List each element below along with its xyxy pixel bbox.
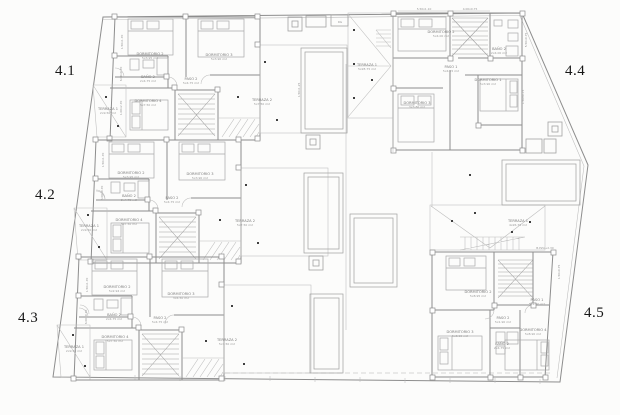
survey-dot xyxy=(219,219,221,221)
room-label: 5x7.50 m2 xyxy=(254,102,270,106)
survey-dot xyxy=(353,63,355,65)
stairs xyxy=(452,18,488,56)
survey-dot xyxy=(243,363,245,365)
room-label: 5x4.75 m2 xyxy=(152,320,168,324)
dimension-label: 6.00x0.70 xyxy=(119,67,123,82)
unit-4-2-plan xyxy=(74,137,328,264)
unit-label-4-4: 4.4 xyxy=(565,64,585,79)
room-label: 4x26.75 m2 xyxy=(509,223,527,227)
dimension-label: 5.50x1.10 xyxy=(417,7,432,11)
room-label: 5x8.95 m2 xyxy=(470,294,486,298)
dimension-label: 1.00x2.70 xyxy=(119,101,123,116)
room-label: 5x3.90 m2 xyxy=(480,82,496,86)
annotation-layer: DORMITORIO 25x3.95 m2DORMITORIO 35x3.90 … xyxy=(63,7,561,367)
room-label: 5x7.50 m2 xyxy=(237,223,253,227)
dimension-label: 1.50x0.75 xyxy=(521,90,525,105)
dimension-label: RG xyxy=(338,20,342,24)
survey-dot xyxy=(469,174,471,176)
unit-4-1-plan xyxy=(93,14,347,141)
survey-dot xyxy=(529,221,531,223)
survey-dot xyxy=(511,231,513,233)
room-label: 5x4.75 m2 xyxy=(183,81,199,85)
survey-dot xyxy=(84,365,86,367)
dimension-label: 1.50x0.75 xyxy=(557,265,561,280)
dimension-label: 1.50x1.70 xyxy=(101,153,105,168)
survey-dot xyxy=(72,334,74,336)
survey-dot xyxy=(353,97,355,99)
survey-dot xyxy=(353,29,355,31)
room-label: 3x4.50 m2 xyxy=(173,296,189,300)
room-label: 5x3.90 m2 xyxy=(192,176,208,180)
room-label: 5x4.75 m2 xyxy=(164,200,180,204)
columns xyxy=(391,11,525,153)
survey-dot xyxy=(257,242,259,244)
room-label: 3x3.80 m2 xyxy=(409,105,425,109)
survey-dot xyxy=(231,305,233,307)
survey-dot xyxy=(371,79,373,81)
room-label: 2x4.75 m2 xyxy=(121,198,137,202)
survey-dot xyxy=(117,125,119,127)
room-label: 2x4.75 m2 xyxy=(140,79,156,83)
survey-dot xyxy=(237,96,239,98)
room-label: 5x28.75 m2 xyxy=(358,67,376,71)
room-label: 5x4.00 m2 xyxy=(433,34,449,38)
survey-dot xyxy=(264,61,266,63)
dimension-label: B.PZA+2.30 xyxy=(536,246,554,250)
room-label: 2x9.50 m2 xyxy=(66,349,82,353)
survey-dot xyxy=(451,220,453,222)
room-label: 5x1.90 m2 xyxy=(495,320,511,324)
stairs xyxy=(498,260,533,298)
survey-dot xyxy=(98,246,100,248)
terrace-pools xyxy=(301,48,580,373)
survey-dot xyxy=(205,340,207,342)
survey-dot xyxy=(245,184,247,186)
survey-dot xyxy=(87,214,89,216)
unit-label-4-3: 4.3 xyxy=(18,311,38,326)
unit-4-3-plan xyxy=(57,254,311,381)
dimension-label: 1.50x1.70 xyxy=(120,35,124,50)
room-label: 5x7.50 m2 xyxy=(219,342,235,346)
room-label: 2x9.50 m2 xyxy=(81,228,97,232)
dimension-label: 6.00x0.70 xyxy=(100,186,104,201)
room-label: 5x3.90 m2 xyxy=(211,57,227,61)
dimension-label: 1.50x1.70 xyxy=(85,278,89,293)
dimension-label: 1.50x1.25 xyxy=(297,83,301,98)
room-label: 2x4.75 m2 xyxy=(494,346,510,350)
room-label: 5x3.95 m2 xyxy=(142,56,158,60)
dimension-label: 5.50x0.75 xyxy=(524,33,528,48)
room-label: 5x7.50 m2 xyxy=(121,222,137,226)
room-label: 5x1.90 m2 xyxy=(529,302,545,306)
unit-label-4-1: 4.1 xyxy=(55,64,75,79)
room-label: 2x4.75 m2 xyxy=(106,317,122,321)
service-shafts xyxy=(288,15,562,270)
room-label: 5x4.15 m2 xyxy=(443,69,459,73)
floorplan-sheet: DORMITORIO 25x3.95 m2DORMITORIO 35x3.90 … xyxy=(0,0,620,415)
room-label: 5x7.50 m2 xyxy=(140,103,156,107)
room-label: 5x8.90 m2 xyxy=(525,332,541,336)
room-label: 5x2.94 m2 xyxy=(109,289,125,293)
unit-label-4-2: 4.2 xyxy=(35,188,55,203)
room-label: 5x8.90 m2 xyxy=(452,334,468,338)
room-label: 5x7.50 m2 xyxy=(107,339,123,343)
dimension-label: 6.00x0.70 xyxy=(84,310,88,325)
room-label: 2x9.50 m2 xyxy=(100,111,116,115)
floorplan-drawing: DORMITORIO 25x3.95 m2DORMITORIO 35x3.90 … xyxy=(0,0,620,415)
room-label: 5x3.95 m2 xyxy=(123,175,139,179)
unit-4-5-plan xyxy=(430,205,556,380)
unit-label-4-5: 4.5 xyxy=(584,306,604,321)
survey-dot xyxy=(474,212,476,214)
survey-dot xyxy=(276,119,278,121)
survey-dot xyxy=(105,96,107,98)
room-label: 2x4.00 m2 xyxy=(491,51,507,55)
terrace-1-sloped xyxy=(430,205,545,250)
dimension-label: 4.00x0.75 xyxy=(463,7,478,11)
